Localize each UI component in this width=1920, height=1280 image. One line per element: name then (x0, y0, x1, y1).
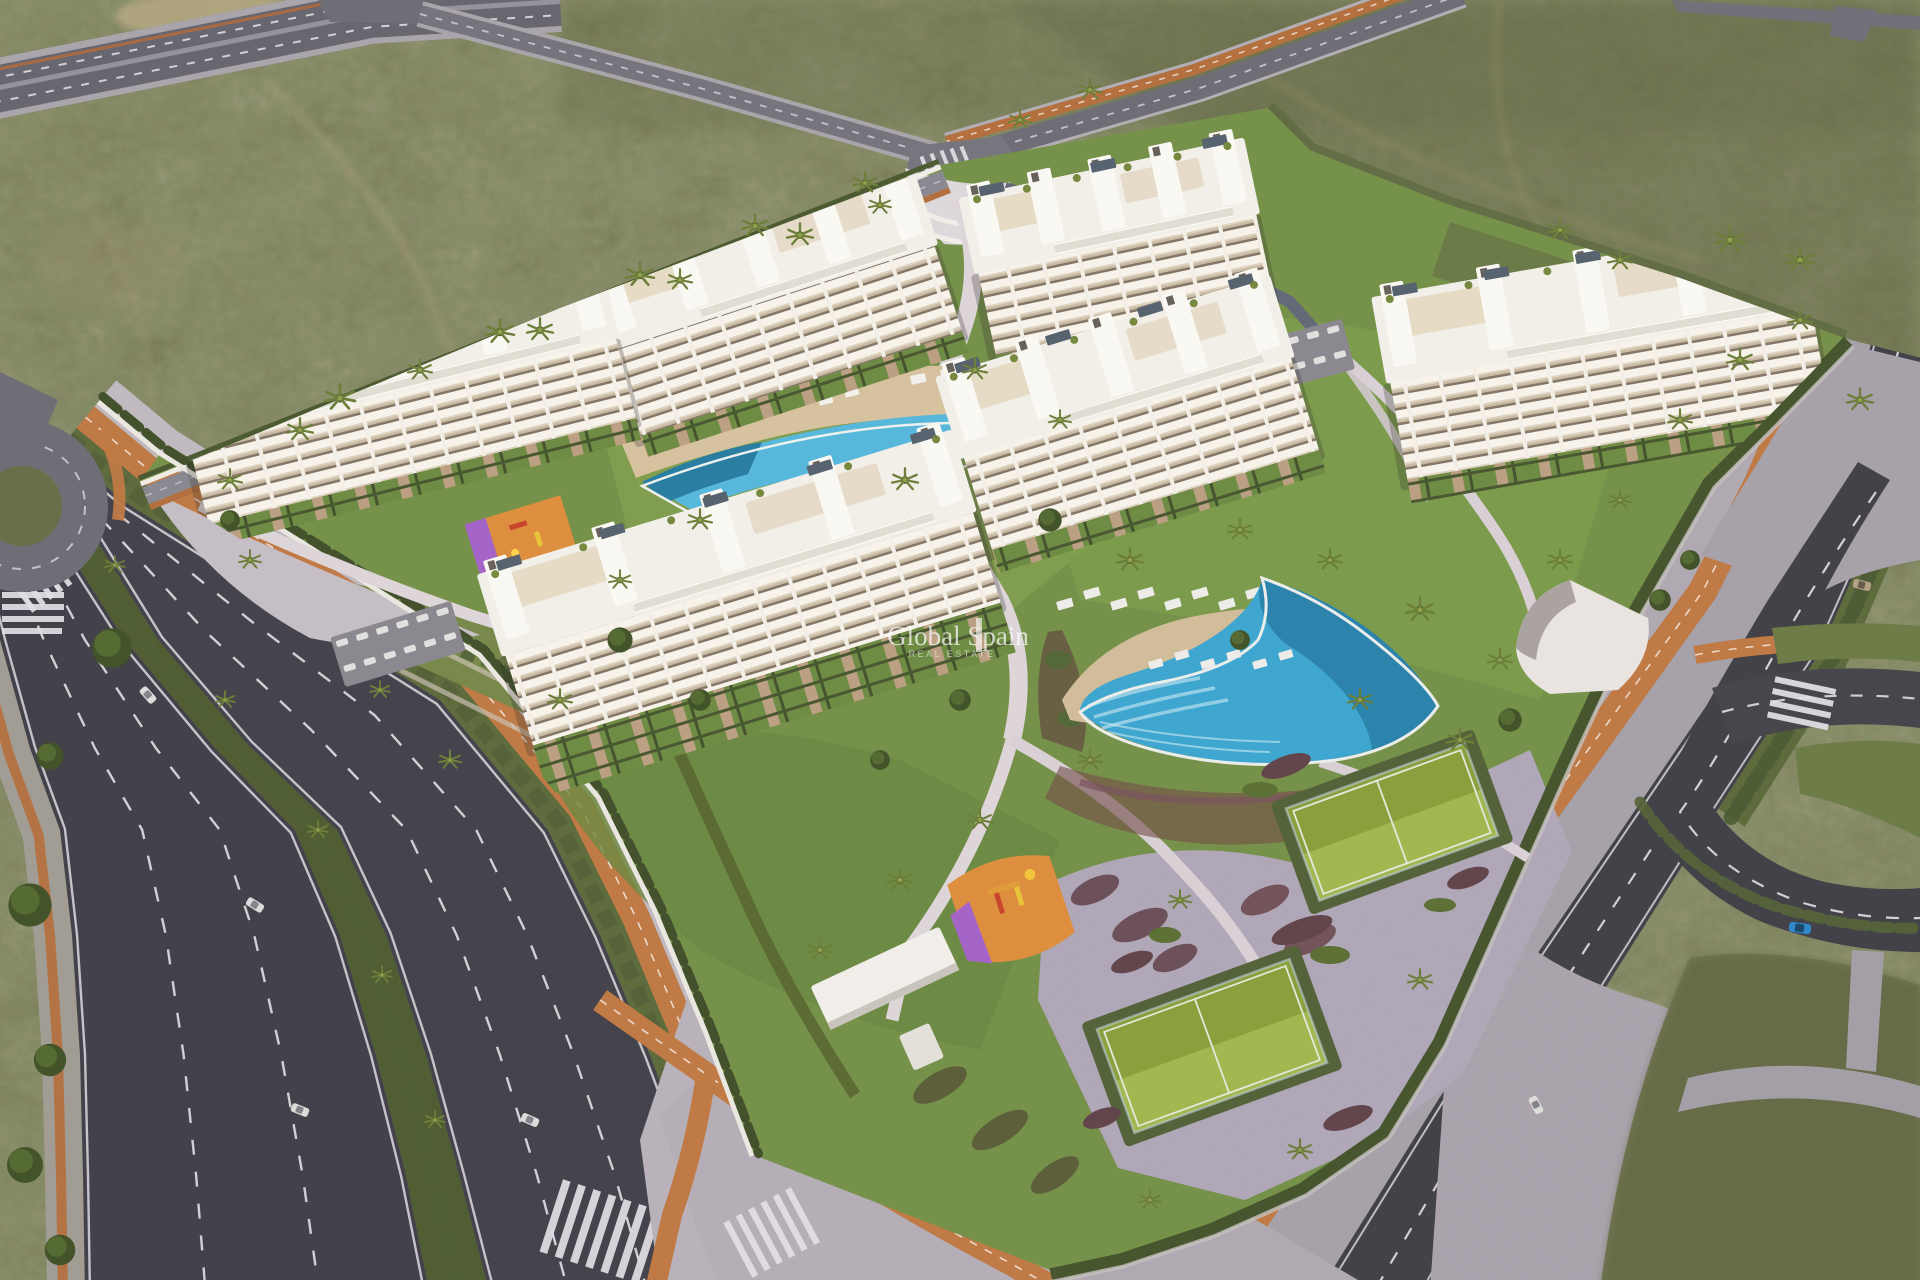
svg-text:REAL ESTATE: REAL ESTATE (909, 649, 996, 659)
svg-text:Global Spain: Global Spain (887, 621, 1029, 651)
